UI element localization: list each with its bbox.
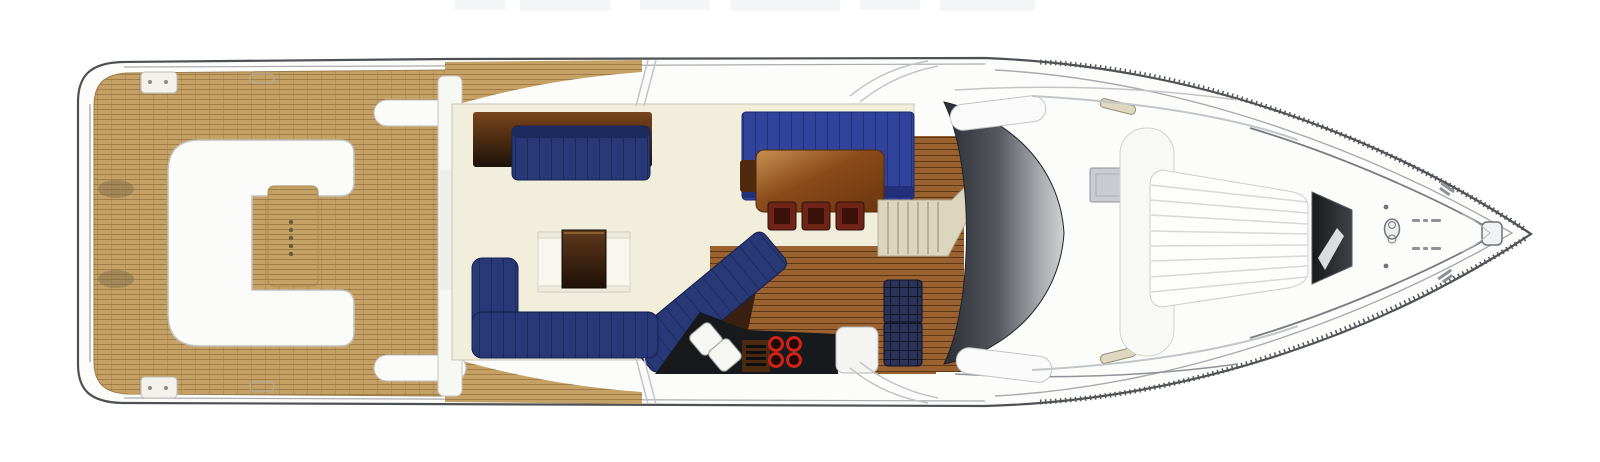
transom-corner-fitting-bottom <box>141 377 177 398</box>
dining-table-end <box>740 160 758 192</box>
top-edge-artifact <box>455 0 1035 11</box>
yacht-deck-plan <box>0 0 1600 462</box>
galley-appliance <box>836 327 878 373</box>
deck-wear-mark <box>98 180 134 198</box>
coffee-table-group <box>538 230 630 292</box>
aft-teak-table <box>268 186 318 286</box>
bow-sunpad <box>1150 170 1308 307</box>
deck-wear-mark <box>98 270 134 288</box>
dining-chairs <box>768 202 864 230</box>
bow-roller <box>1482 222 1502 245</box>
deck-plan-drawing <box>0 0 1600 462</box>
coffee-table <box>562 230 606 288</box>
checkered-seats <box>884 280 922 366</box>
galley-grill <box>742 340 770 372</box>
salon-top-sofa <box>512 126 650 180</box>
transom-corner-fitting-top <box>141 72 177 93</box>
